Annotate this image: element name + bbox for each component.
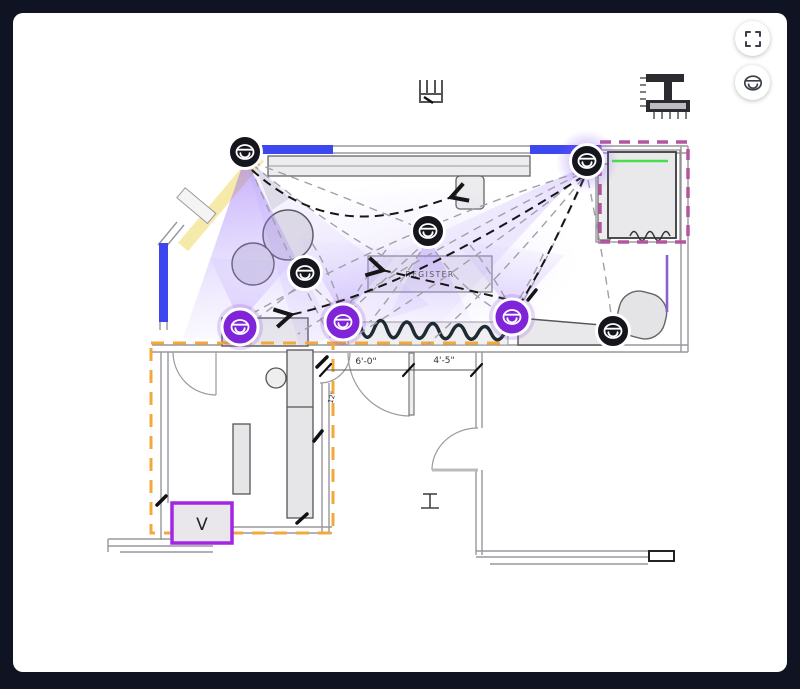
fullscreen-icon <box>744 30 762 48</box>
camera-marker-7[interactable] <box>489 294 535 340</box>
wall-outlet-box <box>649 551 674 561</box>
vault-box[interactable]: V <box>172 503 232 543</box>
camera-marker-4[interactable] <box>289 257 322 290</box>
floorplan-svg: V 6'-0" 4'-5" 12" REGISTER <box>0 0 800 689</box>
camera-marker-6[interactable] <box>320 299 366 345</box>
column-symbol <box>421 494 439 508</box>
shelving-small <box>233 424 250 494</box>
camera-tool-button[interactable] <box>735 65 770 100</box>
stool <box>266 368 286 388</box>
fullscreen-button[interactable] <box>735 21 770 56</box>
camera-marker-1[interactable] <box>229 136 262 169</box>
camera-marker-8[interactable] <box>597 315 630 348</box>
app-frame: V 6'-0" 4'-5" 12" REGISTER <box>0 0 800 689</box>
dome-camera-icon <box>742 72 764 94</box>
camera-marker-3[interactable] <box>412 215 445 248</box>
wall-highlight-top-left <box>262 145 333 154</box>
shelving-tall <box>287 350 313 518</box>
wall-highlight-left <box>159 243 168 322</box>
dimension-label-a: 6'-0" <box>355 357 376 367</box>
dimension-label-b: 4'-5" <box>433 356 454 366</box>
electrical-panel-symbol <box>640 74 690 119</box>
vault-label: V <box>196 515 208 535</box>
camera-marker-5[interactable] <box>217 304 263 350</box>
camera-marker-2[interactable] <box>556 130 618 192</box>
window-schedule-symbol <box>420 80 442 103</box>
dimension-label-c: 12" <box>327 391 338 405</box>
